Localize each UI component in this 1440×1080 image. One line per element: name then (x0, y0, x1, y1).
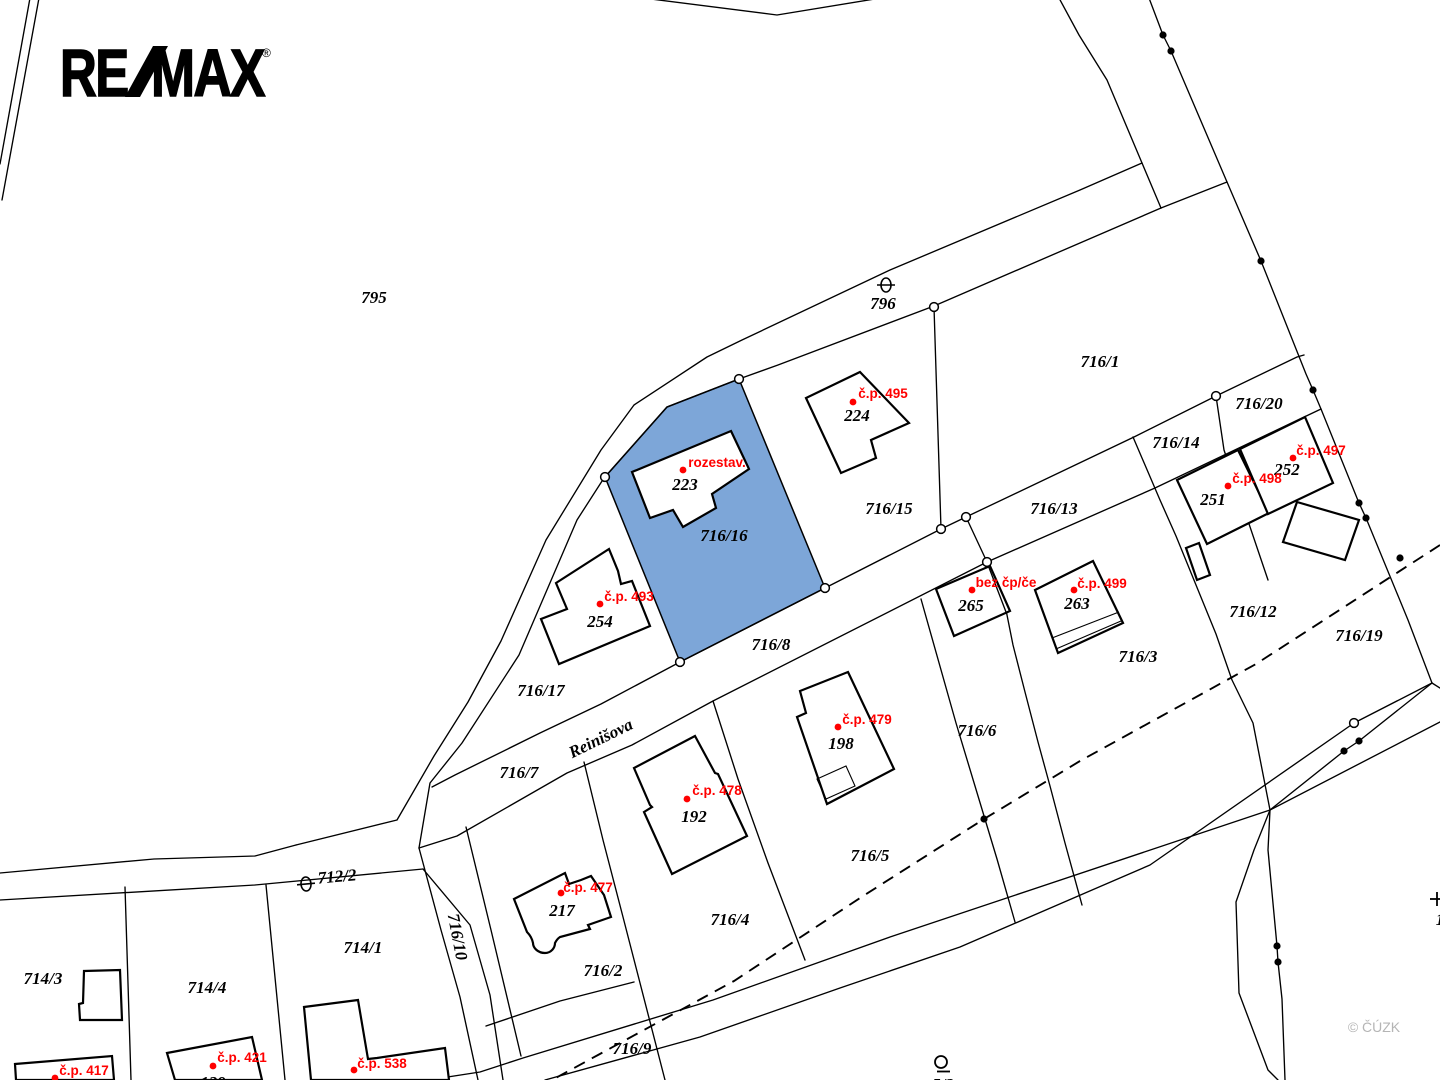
svg-text:716/15: 716/15 (865, 499, 913, 518)
svg-text:č.p. 538: č.p. 538 (357, 1056, 407, 1071)
svg-text:716/19: 716/19 (1335, 626, 1383, 645)
svg-text:795: 795 (361, 288, 387, 307)
svg-text:716/20: 716/20 (1235, 394, 1283, 413)
svg-text:254: 254 (586, 612, 613, 631)
svg-text:© ČÚZK: © ČÚZK (1348, 1019, 1401, 1035)
svg-text:217: 217 (548, 901, 576, 920)
svg-text:č.p. 421: č.p. 421 (217, 1050, 267, 1065)
svg-text:716/7: 716/7 (500, 763, 540, 782)
svg-text:č.p. 477: č.p. 477 (563, 880, 613, 895)
svg-text:bez čp/če: bez čp/če (976, 575, 1037, 590)
svg-text:716/2: 716/2 (584, 961, 623, 980)
svg-text:č.p. 495: č.p. 495 (858, 386, 908, 401)
svg-text:716/1: 716/1 (1081, 352, 1120, 371)
svg-text:712/2: 712/2 (317, 865, 358, 887)
svg-text:716/3: 716/3 (1119, 647, 1158, 666)
svg-text:č.p. 478: č.p. 478 (692, 783, 742, 798)
svg-text:716/14: 716/14 (1152, 433, 1199, 452)
svg-text:716/5: 716/5 (851, 846, 890, 865)
svg-text:1: 1 (1436, 910, 1440, 929)
svg-text:263: 263 (1063, 594, 1090, 613)
svg-text:714/4: 714/4 (188, 978, 227, 997)
svg-text:5/2: 5/2 (932, 1075, 954, 1080)
svg-text:č.p. 499: č.p. 499 (1077, 576, 1127, 591)
svg-text:714/3: 714/3 (24, 969, 63, 988)
svg-text:č.p. 498: č.p. 498 (1232, 471, 1282, 486)
svg-text:716/17: 716/17 (517, 681, 566, 700)
svg-text:RE: RE (60, 35, 128, 110)
svg-text:716/4: 716/4 (711, 910, 750, 929)
svg-text:716/6: 716/6 (958, 721, 997, 740)
svg-text:251: 251 (1199, 490, 1226, 509)
svg-text:č.p. 479: č.p. 479 (842, 712, 892, 727)
svg-text:224: 224 (843, 406, 870, 425)
svg-text:198: 198 (828, 734, 854, 753)
svg-text:139: 139 (200, 1073, 226, 1080)
svg-text:č.p. 417: č.p. 417 (59, 1063, 109, 1078)
svg-text:716/12: 716/12 (1229, 602, 1277, 621)
svg-text:č.p. 497: č.p. 497 (1296, 443, 1346, 458)
svg-text:192: 192 (681, 807, 707, 826)
svg-text:265: 265 (957, 596, 984, 615)
svg-text:716/9: 716/9 (613, 1039, 652, 1058)
svg-text:rozestav.: rozestav. (688, 455, 746, 470)
svg-text:MAX: MAX (151, 35, 265, 110)
svg-text:č.p. 493: č.p. 493 (604, 589, 654, 604)
svg-text:716/13: 716/13 (1030, 499, 1078, 518)
svg-text:®: ® (262, 46, 271, 60)
svg-text:223: 223 (671, 475, 698, 494)
svg-text:796: 796 (870, 294, 896, 313)
svg-text:716/16: 716/16 (700, 526, 748, 545)
svg-text:714/1: 714/1 (344, 938, 383, 957)
svg-text:716/8: 716/8 (752, 635, 791, 654)
